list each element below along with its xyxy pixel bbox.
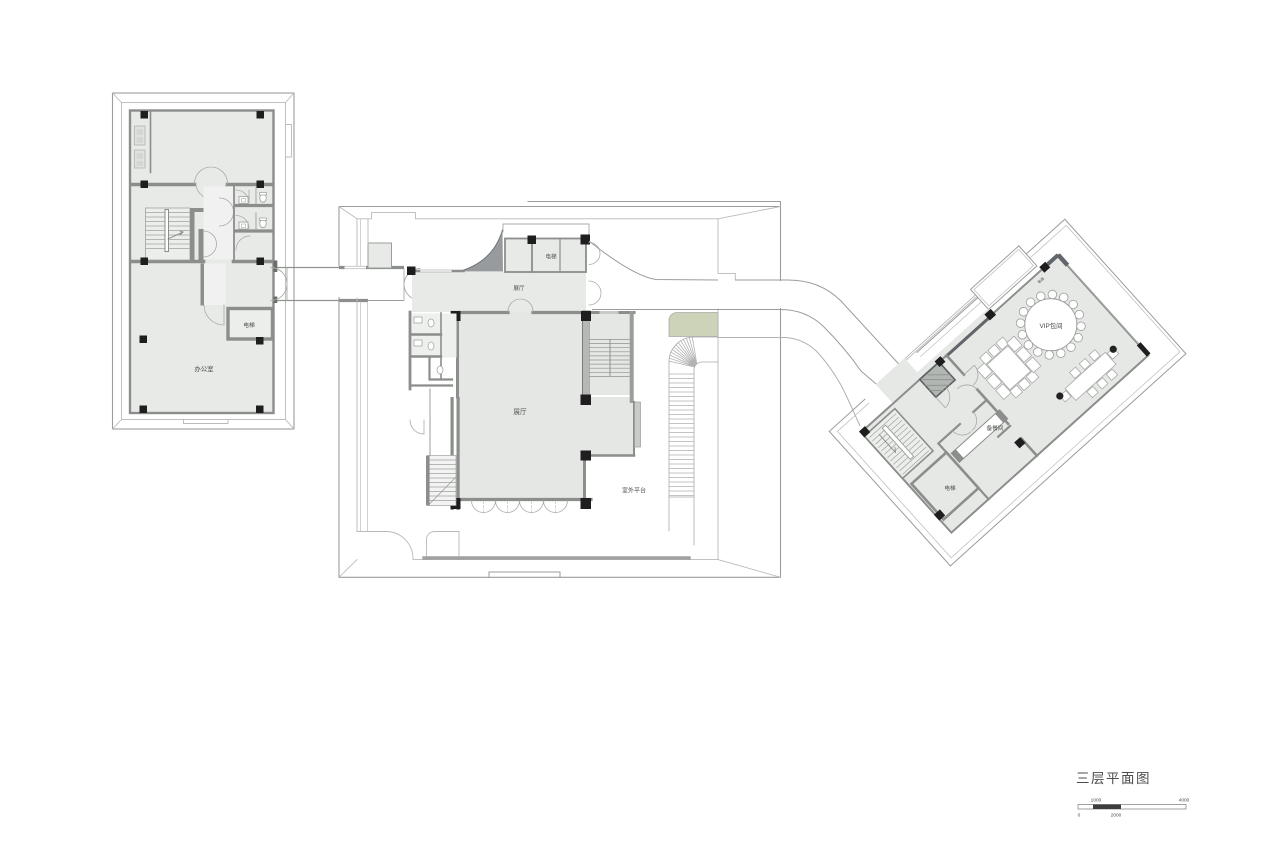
- svg-text:电梯: 电梯: [944, 484, 956, 492]
- svg-text:备餐间: 备餐间: [987, 424, 1004, 432]
- svg-text:三层平面图: 三层平面图: [1076, 771, 1151, 786]
- svg-text:VIP包间: VIP包间: [1039, 321, 1062, 330]
- svg-text:电梯: 电梯: [545, 253, 557, 261]
- svg-text:电梯: 电梯: [243, 321, 255, 329]
- svg-text:展厅: 展厅: [513, 408, 527, 416]
- svg-text:2000: 2000: [1111, 813, 1122, 819]
- svg-text:1000: 1000: [1091, 798, 1102, 804]
- svg-text:办公室: 办公室: [194, 364, 214, 373]
- svg-text:4000: 4000: [1179, 798, 1190, 804]
- svg-text:0: 0: [1078, 813, 1081, 819]
- svg-text:展厅: 展厅: [513, 285, 525, 292]
- svg-text:室外平台: 室外平台: [622, 487, 646, 495]
